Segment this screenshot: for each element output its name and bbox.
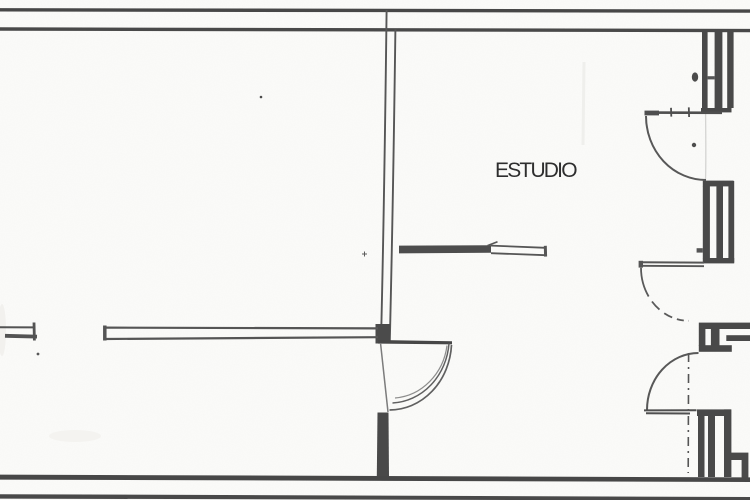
svg-text:ESTUDIO: ESTUDIO <box>495 159 577 182</box>
